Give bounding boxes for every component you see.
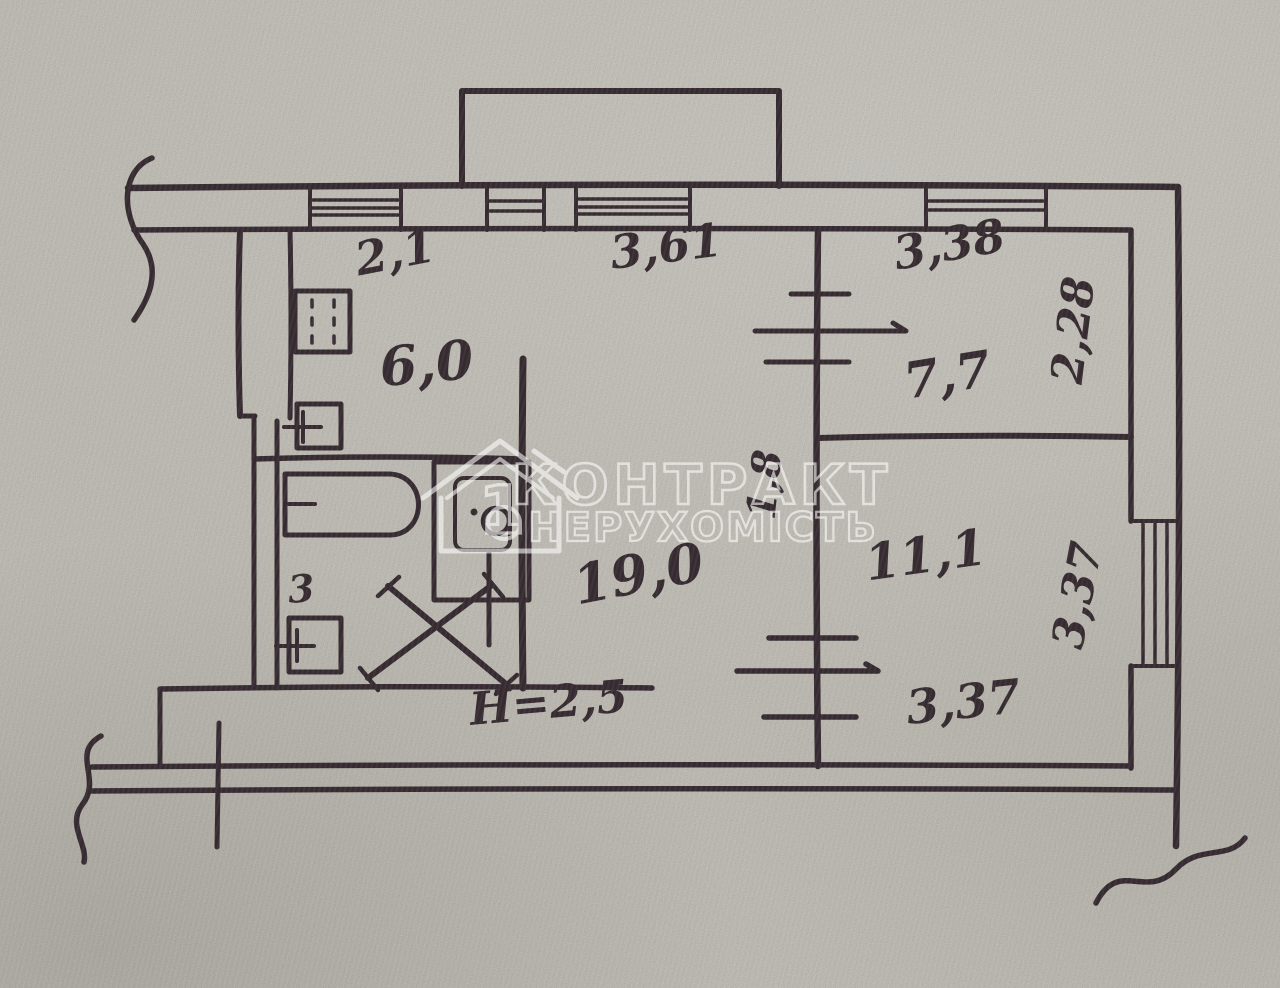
wall-bottom-outer <box>90 789 1176 791</box>
floor-plan-photo: 2,1 3,61 3,38 2,28 6,0 7,7 1,8 19,0 11,1… <box>0 0 1280 988</box>
wall-bottom-section-tick <box>217 723 219 847</box>
floor-plan-drawing: 2,1 3,61 3,38 2,28 6,0 7,7 1,8 19,0 11,1… <box>0 0 1280 988</box>
label-wc: 3 <box>286 565 316 612</box>
wall-right-outer <box>1176 187 1179 846</box>
wall-kitchen-left <box>290 230 291 418</box>
wall-bedrooms-divider <box>818 436 1131 438</box>
wall-bottom-inner <box>92 765 1131 767</box>
watermark-subtitle: НЕРУХОМІСТЬ <box>528 505 878 551</box>
area-kitchen: 6,0 <box>377 327 476 399</box>
wall-top-outer <box>128 185 1178 188</box>
wall-left-outer <box>239 230 241 416</box>
